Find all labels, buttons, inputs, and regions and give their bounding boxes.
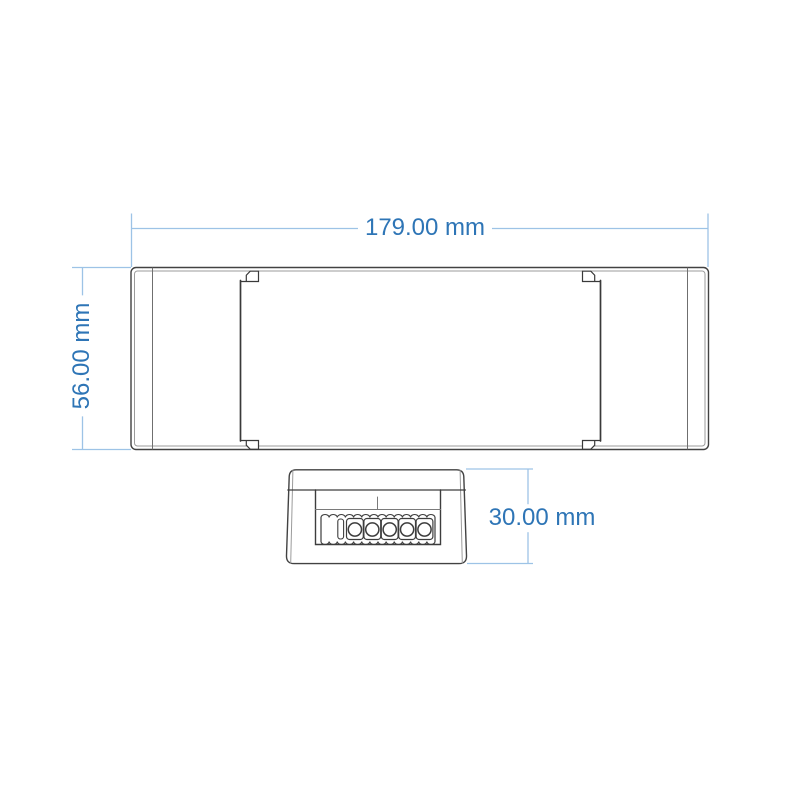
endview-outline <box>286 470 466 564</box>
enclosure-outline <box>131 268 709 450</box>
screw-head <box>366 523 379 536</box>
top-view <box>131 268 709 450</box>
screw-head <box>348 523 361 536</box>
technical-drawing-canvas: 179.00 mm 56.00 mm 30.00 mm <box>0 0 800 800</box>
terminal-end-plate <box>338 519 344 539</box>
side-view <box>286 470 466 564</box>
depth-dimension-label: 30.00 mm <box>482 504 603 532</box>
screw-head <box>418 523 431 536</box>
screw-head <box>401 523 414 536</box>
screw-terminals <box>347 519 433 540</box>
drawing-svg <box>0 0 800 800</box>
width-dimension-label: 179.00 mm <box>358 214 492 242</box>
height-dimension-label: 56.00 mm <box>68 296 96 417</box>
screw-head <box>383 523 396 536</box>
